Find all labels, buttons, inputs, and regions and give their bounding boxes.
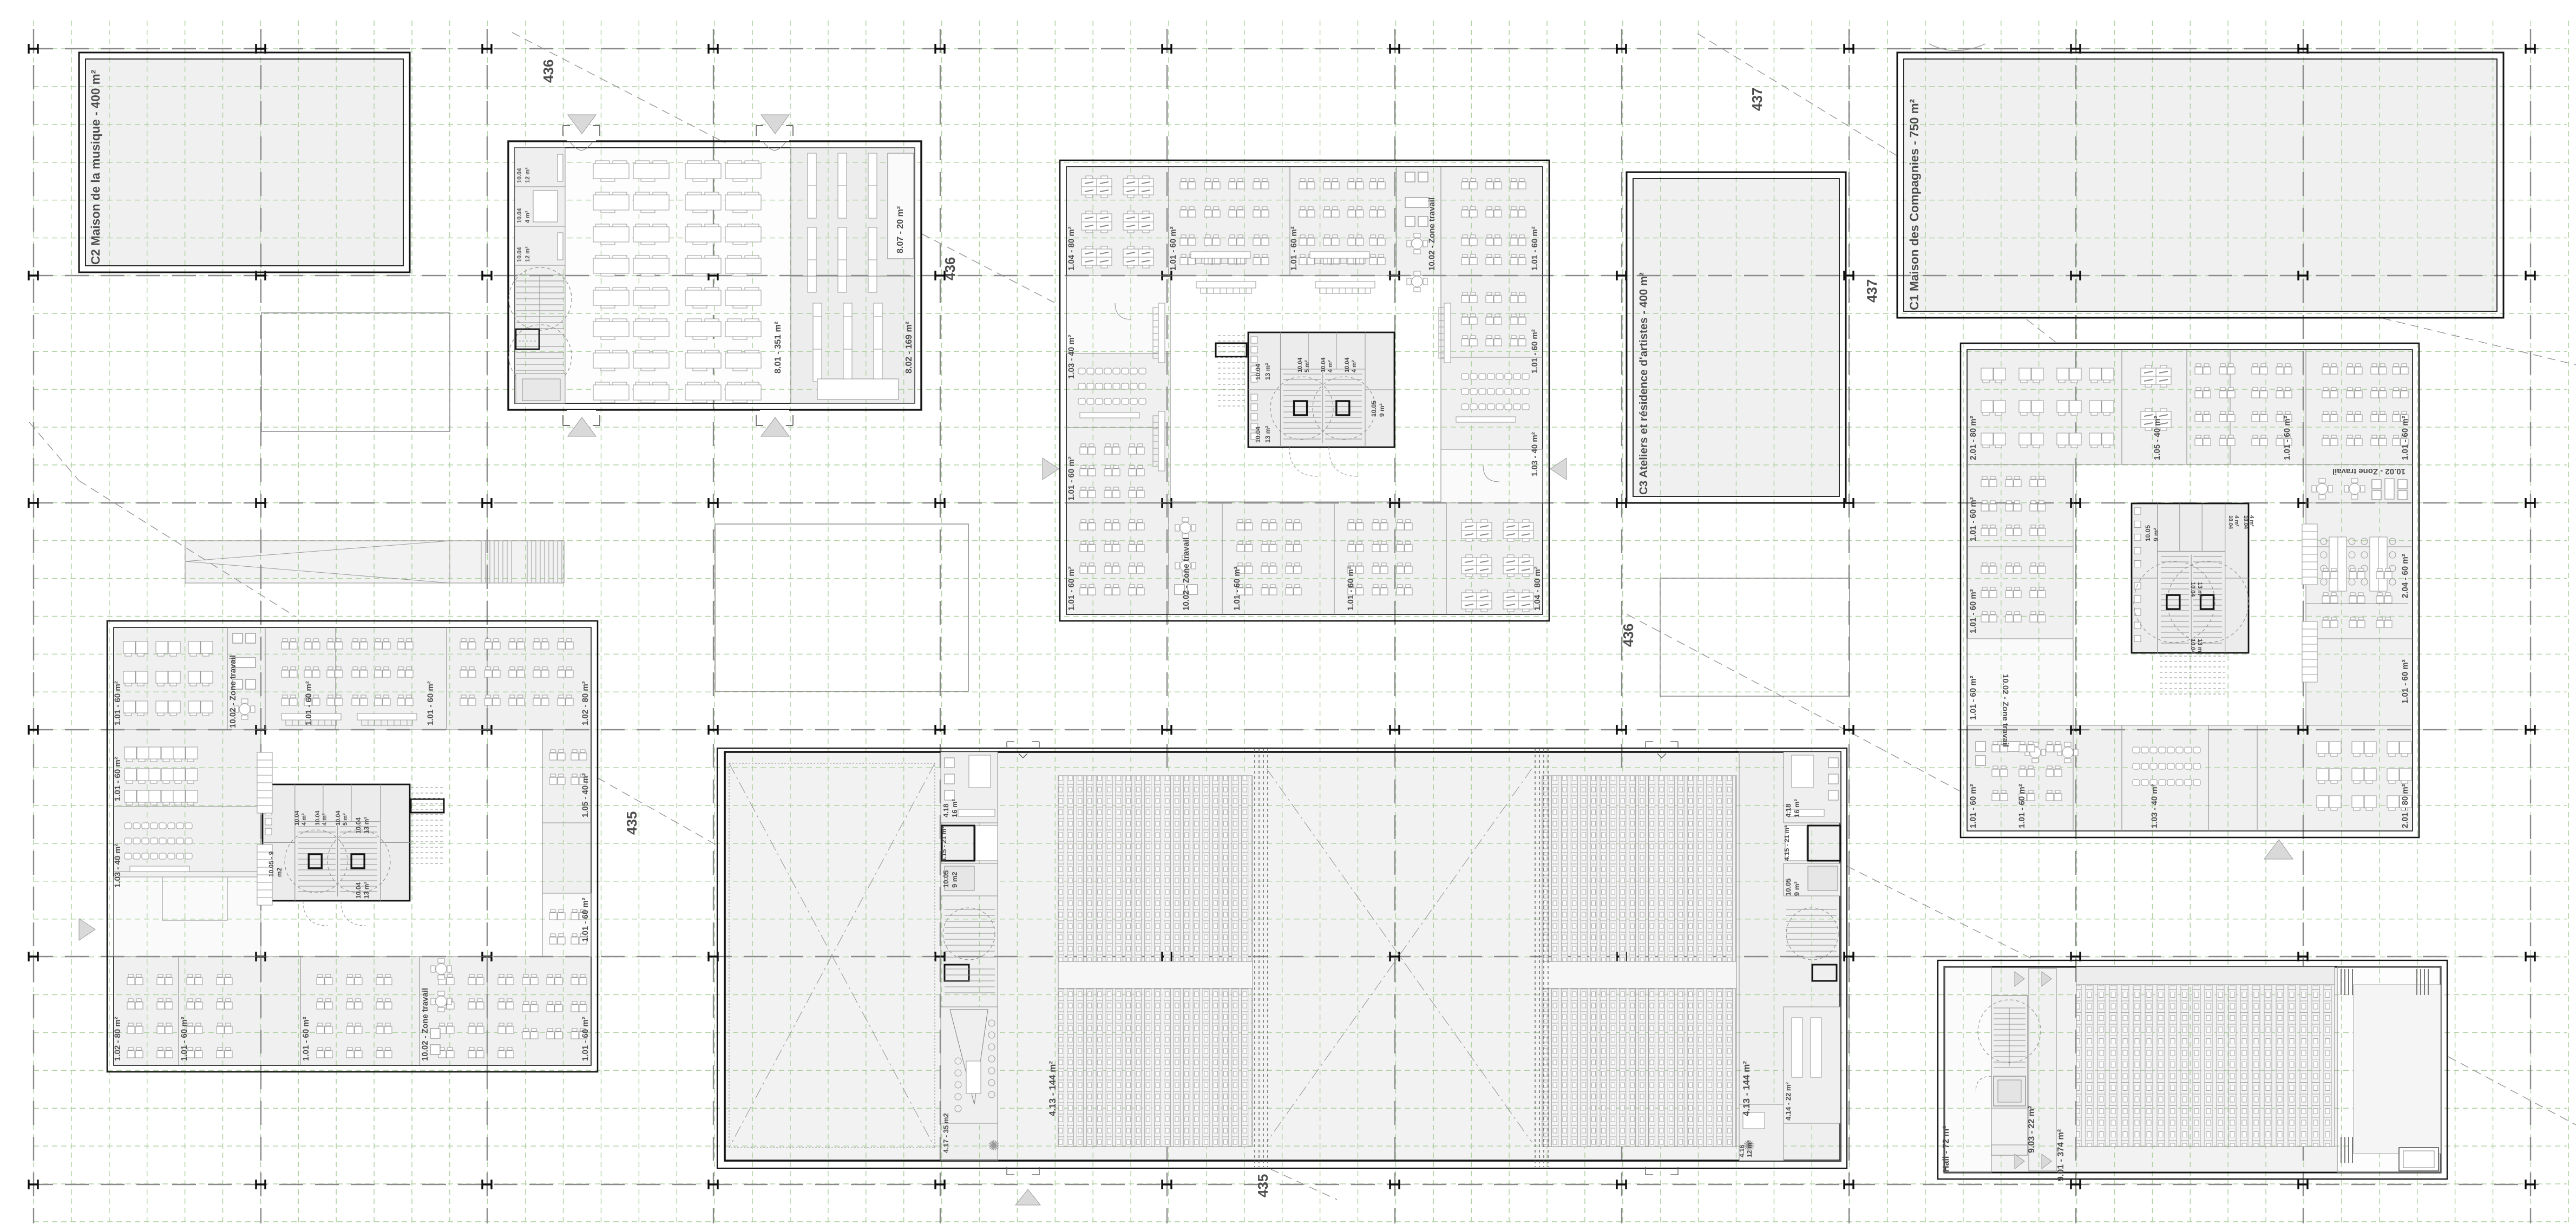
svg-text:10.04: 10.04 xyxy=(314,810,321,826)
svg-text:10.02 - Zone travail: 10.02 - Zone travail xyxy=(1182,538,1191,611)
svg-text:2.01 - 80 m²: 2.01 - 80 m² xyxy=(2401,784,2410,828)
svg-text:4.14 - 22 m²: 4.14 - 22 m² xyxy=(1784,1082,1792,1121)
svg-text:4.15 - 21 m²: 4.15 - 21 m² xyxy=(1783,826,1791,861)
svg-text:4 m²: 4 m² xyxy=(1351,360,1358,372)
svg-text:1.04 - 80 m²: 1.04 - 80 m² xyxy=(1533,566,1542,611)
svg-text:10.02 - Zone travail: 10.02 - Zone travail xyxy=(421,988,430,1061)
svg-text:1.03 - 40 m²: 1.03 - 40 m² xyxy=(113,843,122,888)
svg-text:10.02 - Zone travail: 10.02 - Zone travail xyxy=(1427,198,1437,271)
svg-text:1.05 - 40 m²: 1.05 - 40 m² xyxy=(2153,416,2162,460)
svg-text:1.01 - 60 m²: 1.01 - 60 m² xyxy=(1067,456,1076,501)
svg-text:10.04: 10.04 xyxy=(516,208,523,223)
svg-text:9 m²: 9 m² xyxy=(2152,528,2160,541)
svg-text:12 m²: 12 m² xyxy=(1746,1141,1753,1157)
svg-text:10.02 - Zone travail: 10.02 - Zone travail xyxy=(2001,674,2010,747)
svg-text:4.16: 4.16 xyxy=(1738,1144,1746,1157)
svg-text:13 m²: 13 m² xyxy=(1264,363,1271,380)
svg-text:10.05 - 9: 10.05 - 9 xyxy=(267,851,275,877)
svg-text:1.01 - 60 m²: 1.01 - 60 m² xyxy=(1530,226,1539,271)
svg-text:437: 437 xyxy=(1749,88,1765,111)
svg-text:10.04: 10.04 xyxy=(1344,357,1351,372)
svg-text:2.04 - 60 m²: 2.04 - 60 m² xyxy=(2401,554,2410,598)
svg-text:8.07 - 20 m²: 8.07 - 20 m² xyxy=(896,206,905,253)
svg-text:10.04: 10.04 xyxy=(516,168,523,183)
svg-text:4.15 - 21 m²: 4.15 - 21 m² xyxy=(940,827,948,862)
svg-text:1.01 - 60 m²: 1.01 - 60 m² xyxy=(2017,784,2027,828)
svg-text:10.04: 10.04 xyxy=(2190,582,2196,597)
svg-text:10.05: 10.05 xyxy=(1784,878,1792,896)
svg-text:435: 435 xyxy=(624,811,640,835)
svg-text:12 m²: 12 m² xyxy=(525,167,531,183)
svg-text:10.04: 10.04 xyxy=(355,817,362,834)
svg-text:8.02 - 169 m²: 8.02 - 169 m² xyxy=(904,322,914,374)
svg-text:1.01 - 60 m²: 1.01 - 60 m² xyxy=(2401,659,2410,704)
svg-text:10.04: 10.04 xyxy=(335,810,342,826)
svg-text:1.02 - 80 m²: 1.02 - 80 m² xyxy=(581,681,590,725)
svg-text:9.03 - 22 m²: 9.03 - 22 m² xyxy=(2027,1106,2036,1153)
svg-text:10.04: 10.04 xyxy=(355,882,362,899)
svg-text:1.01 - 60 m²: 1.01 - 60 m² xyxy=(1969,784,1978,828)
svg-text:1.03 - 40 m²: 1.03 - 40 m² xyxy=(2150,784,2159,828)
svg-text:10.02 - Zone travail: 10.02 - Zone travail xyxy=(228,655,238,728)
svg-text:13 m²: 13 m² xyxy=(363,817,370,834)
svg-text:9.01 - 374 m²: 9.01 - 374 m² xyxy=(2056,1129,2066,1181)
svg-text:4 m²: 4 m² xyxy=(525,211,531,223)
svg-text:9 m²: 9 m² xyxy=(1793,881,1801,896)
svg-text:4.13 - 144 m²: 4.13 - 144 m² xyxy=(1047,1061,1058,1116)
svg-text:✺: ✺ xyxy=(988,1137,1000,1154)
svg-text:4 m²: 4 m² xyxy=(1327,360,1334,372)
svg-text:1.01 - 60 m²: 1.01 - 60 m² xyxy=(1969,497,1978,541)
svg-text:1.05 - 40 m²: 1.05 - 40 m² xyxy=(581,773,590,817)
svg-text:10.04: 10.04 xyxy=(1254,364,1262,380)
svg-text:10.05: 10.05 xyxy=(942,870,950,888)
svg-text:9 m2: 9 m2 xyxy=(951,872,959,888)
svg-text:1.03 - 40 m²: 1.03 - 40 m² xyxy=(1530,432,1539,476)
svg-text:1.03 - 40 m²: 1.03 - 40 m² xyxy=(1067,335,1076,379)
svg-text:437: 437 xyxy=(1864,279,1880,303)
svg-text:1.01 - 60 m²: 1.01 - 60 m² xyxy=(1969,589,1978,633)
svg-text:10.04: 10.04 xyxy=(1320,357,1327,372)
svg-text:13 m²: 13 m² xyxy=(363,882,370,899)
svg-text:1.01 - 60 m²: 1.01 - 60 m² xyxy=(113,681,122,725)
svg-text:436: 436 xyxy=(1620,624,1636,647)
svg-text:10.04: 10.04 xyxy=(2227,515,2233,529)
svg-text:1.01 - 60 m²: 1.01 - 60 m² xyxy=(304,681,313,725)
svg-text:10.04: 10.04 xyxy=(516,247,523,262)
svg-text:13 m²: 13 m² xyxy=(1264,426,1271,443)
svg-text:m2: m2 xyxy=(276,867,283,877)
svg-text:1.01 - 60 m²: 1.01 - 60 m² xyxy=(113,757,122,801)
svg-text:1.01 - 60 m²: 1.01 - 60 m² xyxy=(180,1017,189,1061)
svg-text:10.04: 10.04 xyxy=(294,810,300,826)
svg-text:10.05: 10.05 xyxy=(2144,525,2152,541)
svg-text:4 m²: 4 m² xyxy=(322,813,328,826)
svg-text:1.02 - 80 m²: 1.02 - 80 m² xyxy=(113,1017,122,1061)
svg-text:4 m²: 4 m² xyxy=(2233,515,2239,527)
svg-text:435: 435 xyxy=(1255,1174,1271,1197)
svg-text:10.04: 10.04 xyxy=(1254,427,1262,443)
svg-text:4.18: 4.18 xyxy=(942,804,950,817)
svg-text:1.01 - 60 m²: 1.01 - 60 m² xyxy=(1169,226,1178,271)
svg-text:1.01 - 60 m²: 1.01 - 60 m² xyxy=(1346,566,1355,611)
svg-text:1.01 - 60 m²: 1.01 - 60 m² xyxy=(1530,329,1539,374)
svg-text:1.01 - 60 m²: 1.01 - 60 m² xyxy=(1289,226,1299,271)
svg-text:1.01 - 60 m²: 1.01 - 60 m² xyxy=(426,681,435,725)
svg-text:12 m²: 12 m² xyxy=(525,246,531,262)
svg-text:5 m²: 5 m² xyxy=(342,813,349,826)
svg-text:10.04: 10.04 xyxy=(2243,515,2249,529)
svg-text:1.01 - 60 m²: 1.01 - 60 m² xyxy=(2283,416,2292,460)
svg-text:5 m²: 5 m² xyxy=(1304,360,1310,372)
svg-text:1.01 - 60 m²: 1.01 - 60 m² xyxy=(581,898,590,942)
svg-text:1.01 - 60 m²: 1.01 - 60 m² xyxy=(581,1017,590,1061)
svg-text:1.01 - 60 m²: 1.01 - 60 m² xyxy=(301,1017,311,1061)
svg-text:10.04: 10.04 xyxy=(1297,357,1303,372)
svg-text:1.04 - 80 m²: 1.04 - 80 m² xyxy=(1067,226,1076,271)
svg-text:4.13 - 144 m²: 4.13 - 144 m² xyxy=(1741,1061,1752,1116)
svg-text:13 m²: 13 m² xyxy=(2197,639,2203,654)
svg-text:1.01 - 60 m²: 1.01 - 60 m² xyxy=(2401,416,2410,460)
svg-text:2.01 - 80 m²: 2.01 - 80 m² xyxy=(1969,416,1978,460)
svg-text:16 m²: 16 m² xyxy=(951,798,959,817)
svg-text:16 m²: 16 m² xyxy=(1793,798,1801,817)
svg-text:4 m²: 4 m² xyxy=(301,813,307,826)
svg-text:4.17 - 35 m2: 4.17 - 35 m2 xyxy=(942,1113,950,1153)
svg-text:436: 436 xyxy=(540,60,556,83)
svg-text:1.01 - 60 m²: 1.01 - 60 m² xyxy=(1969,676,1978,720)
svg-text:4.18: 4.18 xyxy=(1784,804,1792,817)
svg-text:9 m²: 9 m² xyxy=(1378,403,1386,417)
svg-text:C1 Maison des Compagnies - 750: C1 Maison des Compagnies - 750 m² xyxy=(1908,99,1921,310)
svg-text:10.02 - Zone travail: 10.02 - Zone travail xyxy=(2332,467,2405,476)
svg-text:10.05: 10.05 xyxy=(1370,401,1378,417)
svg-text:1.01 - 60 m²: 1.01 - 60 m² xyxy=(1067,566,1076,611)
svg-text:C2 Maison de la musique - 400: C2 Maison de la musique - 400 m² xyxy=(89,69,102,265)
svg-text:1.01 - 60 m²: 1.01 - 60 m² xyxy=(1233,566,1242,611)
svg-text:C3 Ateliers et résidence d'art: C3 Ateliers et résidence d'artistes - 40… xyxy=(1637,272,1650,495)
svg-text:8.01 - 351 m²: 8.01 - 351 m² xyxy=(774,322,783,374)
svg-text:4 m²: 4 m² xyxy=(2249,515,2254,527)
svg-text:Hall - 72 m²: Hall - 72 m² xyxy=(1942,1126,1951,1172)
svg-text:13 m²: 13 m² xyxy=(2197,582,2203,598)
svg-text:10.04: 10.04 xyxy=(2190,639,2196,654)
